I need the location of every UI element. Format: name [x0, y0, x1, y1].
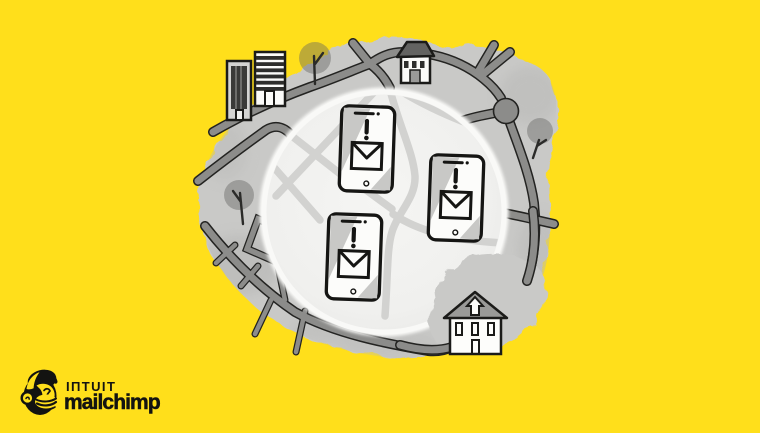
svg-text:mailchimp: mailchimp — [64, 391, 160, 414]
